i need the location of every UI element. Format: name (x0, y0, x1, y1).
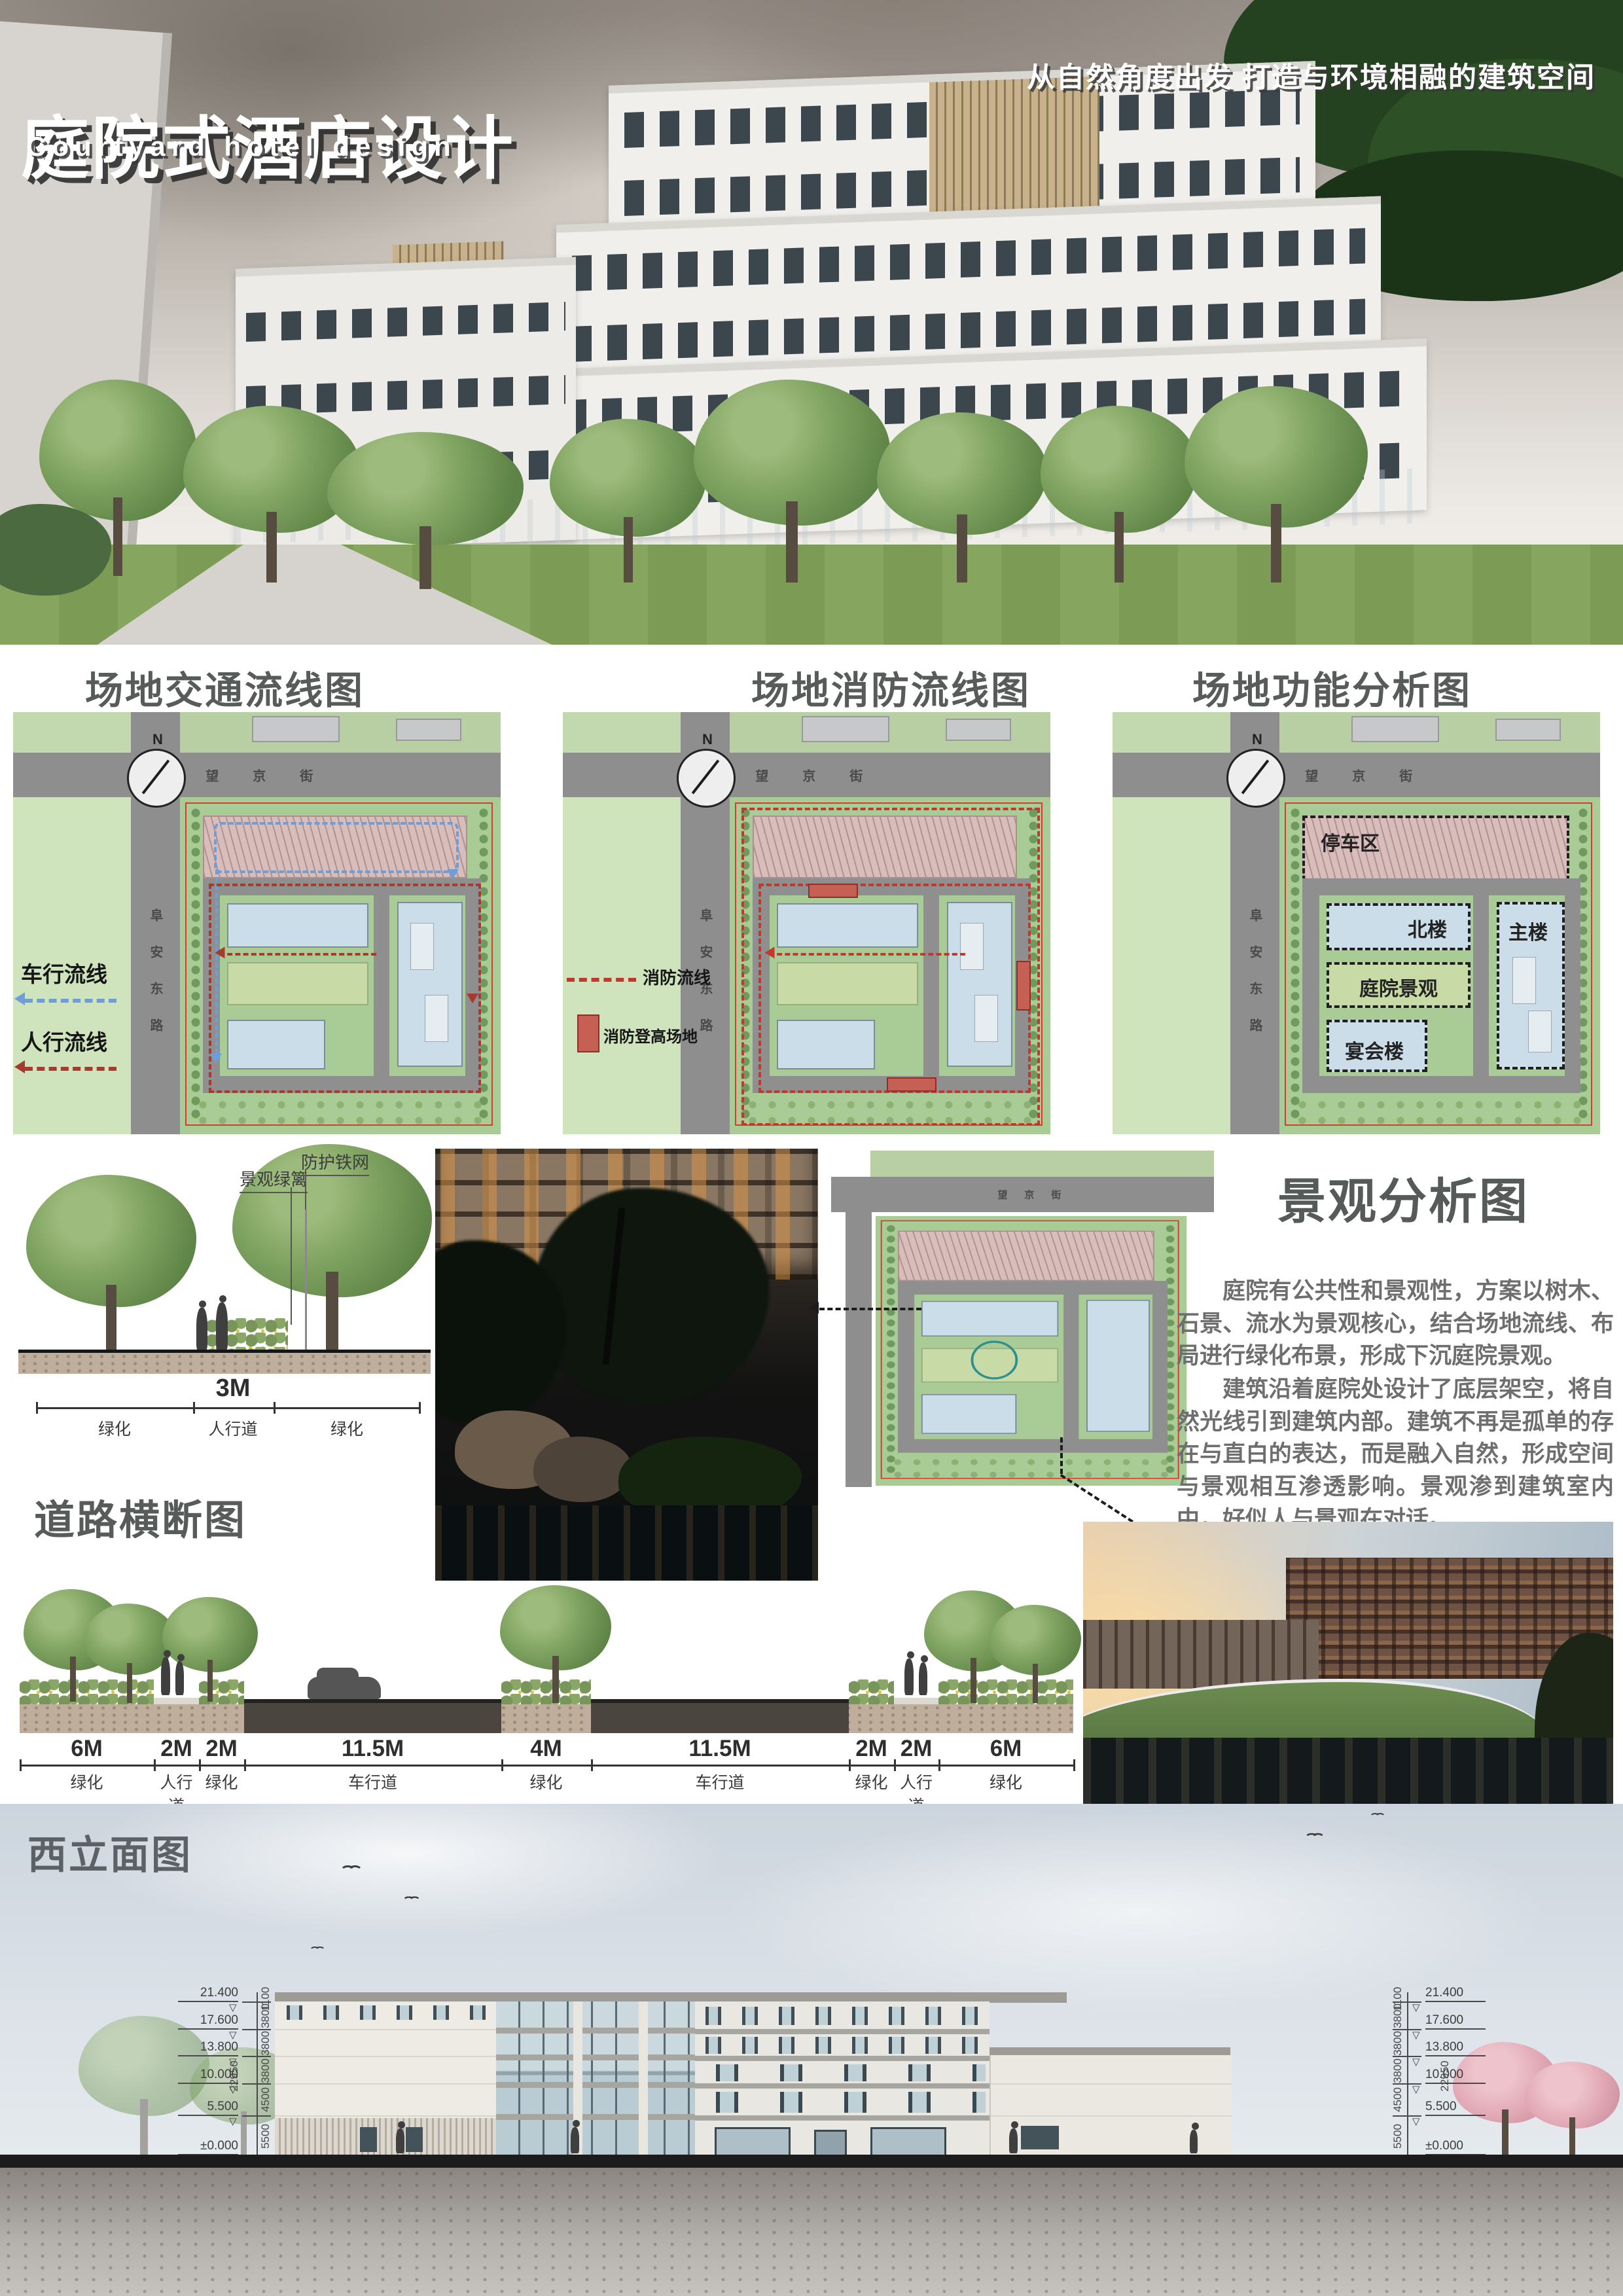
segment-dim: 11.5M (244, 1736, 501, 1762)
spandrel (695, 2083, 990, 2089)
water-reflection (435, 1505, 818, 1581)
compass-needle (1241, 760, 1270, 795)
zone-banquet-label: 宴会楼 (1345, 1035, 1404, 1064)
segment-label: 绿化 (20, 1770, 154, 1793)
parking-zone: 停车区 (1302, 816, 1569, 881)
legend-fire-pad-label: 消防登高场地 (603, 1024, 698, 1047)
tree (694, 380, 890, 583)
courtyard-photo (435, 1149, 818, 1581)
heading-function-diagram: 场地功能分析图 (1192, 660, 1472, 715)
zone-courtyard-label: 庭院景观 (1359, 973, 1438, 1001)
rock (533, 1437, 632, 1502)
low-wing-building (1083, 1620, 1319, 1689)
person-silhouette (196, 1308, 207, 1351)
floor-line (275, 2115, 496, 2117)
level-marker-icon: ▽ (1412, 2115, 1420, 2127)
floor-dim: 5500 (1391, 2121, 1404, 2152)
person-silhouette (216, 1302, 228, 1351)
road-label: 望京街 (205, 766, 347, 785)
hero-render: 庭院式酒店设计 Courtyard hotel design 从自然角度出发 打… (0, 0, 1623, 645)
segment-label: 绿化 (308, 1416, 386, 1440)
internal-road (1302, 1076, 1580, 1093)
floor-line (991, 2115, 1232, 2117)
bird-icon (1305, 1833, 1325, 1841)
poster-tagline: 从自然角度出发 打造与环境相融的建筑空间 (1027, 55, 1596, 96)
arrowhead-icon (14, 992, 25, 1005)
level-label: 21.400 (178, 1986, 238, 2002)
level-label: 5.500 (178, 2100, 238, 2116)
level-marker-icon: ▽ (1412, 2056, 1420, 2068)
floor-dim: 3800 (259, 2028, 272, 2059)
window-band (699, 2007, 986, 2025)
tree (877, 412, 1047, 583)
fire-ladder-pad (887, 1077, 936, 1092)
person-silhouette (161, 1657, 170, 1695)
slat-base (275, 2118, 496, 2155)
tree-row (883, 1223, 897, 1476)
leader-line (291, 1187, 292, 1325)
floor-line (991, 2083, 1232, 2085)
person-silhouette (571, 2127, 579, 2153)
person-silhouette (1009, 2128, 1018, 2153)
fire-route-legend-line (567, 978, 636, 982)
level-label: 5.500 (1425, 2100, 1486, 2116)
segment-dim: 11.5M (591, 1736, 849, 1762)
planting-verge (849, 1679, 894, 1704)
window (406, 2127, 423, 2152)
tree-row (188, 806, 202, 1122)
ground-line (0, 2155, 1623, 2168)
total-height-dim: 22950 (1438, 2055, 1452, 2097)
storefront-glass (870, 2127, 946, 2157)
dim-tick (274, 1402, 276, 1414)
floor-dim: 3800 (1391, 2000, 1404, 2032)
leader-line (305, 1169, 306, 1210)
pier (639, 2001, 648, 2155)
level-label: 13.800 (1425, 2040, 1486, 2056)
segment-label: 车行道 (591, 1770, 849, 1793)
dim-string-line (1407, 1992, 1408, 2157)
person-silhouette (175, 1661, 184, 1695)
diagram-function-panel: 望京街 阜安东路 N 停车区 北楼 主楼 (1113, 712, 1600, 1134)
segment-dim: 6M (20, 1736, 154, 1762)
context-green-strip (870, 1151, 1214, 1177)
bird-icon (340, 1865, 363, 1874)
west-elevation-drawing (275, 1990, 1230, 2155)
soil-section (18, 1353, 431, 1374)
internal-road (1302, 878, 1580, 895)
curtain-wall (496, 2001, 695, 2155)
internal-road (1063, 1281, 1079, 1452)
segment-dim: 2M (849, 1736, 894, 1762)
bird-icon (1370, 1813, 1385, 1819)
context-green-strip (180, 712, 501, 753)
parking-lot (898, 1230, 1154, 1281)
segment-dim: 2M (154, 1736, 199, 1762)
context-green-strip (1279, 712, 1600, 753)
zone-north-label: 北楼 (1408, 914, 1447, 942)
landscape-paragraph-1: 庭院有公共性和景观性，方案以树木、石景、流水为景观核心，结合场地流线、布局进行绿… (1177, 1275, 1614, 1372)
dim-tick (36, 1402, 38, 1414)
street-tree (500, 1585, 611, 1703)
window-row (572, 228, 1365, 291)
green-block (13, 712, 131, 753)
center-block (695, 2001, 990, 2155)
level-marker-icon: ▽ (229, 2001, 237, 2013)
pedestrian-flow-legend-line (25, 1067, 116, 1071)
courtyard-zone: 庭院景观 (1327, 962, 1471, 1008)
fire-route-line (769, 953, 965, 956)
fire-ladder-pad (808, 884, 858, 898)
segment-dim: 2M (894, 1736, 938, 1762)
floor-line (275, 2083, 496, 2085)
tree-silhouette (533, 1188, 769, 1404)
heading-traffic-diagram: 场地交通流线图 (85, 660, 365, 715)
segment-label: 绿化 (938, 1770, 1073, 1793)
north-building (921, 1301, 1059, 1336)
poster-subtitle: Courtyard hotel design (26, 131, 457, 162)
context-building (946, 719, 1011, 741)
spandrel (496, 2054, 695, 2060)
level-label: 17.600 (178, 2013, 238, 2030)
hedge-label: 景观绿篱 (240, 1166, 308, 1193)
window-band (280, 2005, 491, 2020)
road-label: 阜安东路 (146, 908, 165, 1055)
level-label: ±0.000 (178, 2139, 238, 2155)
person-silhouette (904, 1659, 914, 1695)
context-green-strip (730, 712, 1050, 753)
floor-line (275, 2056, 496, 2057)
site-plan (876, 1216, 1186, 1486)
spandrel (695, 2029, 990, 2034)
walkway-width-dim: 3M (194, 1374, 272, 1403)
vehicle-flow-loop (214, 822, 459, 873)
level-marker-icon: ▽ (229, 2029, 237, 2041)
window-band (699, 2037, 986, 2054)
floor-dim: 5500 (259, 2121, 272, 2152)
road-label: 望京街 (1305, 766, 1446, 785)
compass-needle (692, 760, 720, 795)
building-core (1512, 957, 1536, 1004)
landscape-paragraph-2: 建筑沿着庭院处设计了底层架空，将自然光线引到建筑内部。建筑不再是孤单的存在与直白… (1177, 1373, 1614, 1535)
tree (1041, 406, 1198, 583)
heading-west-elevation: 西立面图 (27, 1823, 192, 1880)
main-building (1086, 1300, 1150, 1432)
zone-parking-label: 停车区 (1321, 827, 1380, 856)
compass-n-label: N (702, 731, 713, 748)
dimension-line (36, 1407, 419, 1409)
floor-dim: 3800 (259, 2055, 272, 2087)
green-block (1113, 712, 1230, 753)
window (360, 2127, 377, 2152)
level-marker-icon: ▽ (1412, 2001, 1420, 2013)
west-road (846, 1177, 872, 1487)
internal-road (898, 1439, 1168, 1453)
mini-site-wrap (876, 1216, 1186, 1486)
compass-icon: N (127, 749, 186, 808)
north-building-zone: 北楼 (1327, 903, 1471, 950)
diagram-fire-panel: 望京街 阜安东路 N 消防流线 消防登高场地 (563, 712, 1050, 1134)
main-building-zone: 主楼 (1497, 902, 1565, 1069)
tree (550, 419, 707, 583)
car-cabin (317, 1668, 359, 1681)
dimension-line (20, 1765, 1073, 1767)
legend-pedestrian-label: 人行流线 (21, 1025, 107, 1056)
internal-road (898, 1281, 1168, 1295)
legend-vehicle-label: 车行流线 (21, 957, 107, 988)
bird-icon (402, 1896, 420, 1903)
spandrel (496, 2082, 695, 2088)
section-tree (26, 1175, 196, 1358)
roadway (244, 1699, 501, 1733)
dim-tick (193, 1402, 195, 1414)
level-marker-icon: ▽ (1412, 2029, 1420, 2041)
banquet-building-zone: 宴会楼 (1327, 1020, 1427, 1072)
spandrel (695, 2115, 990, 2121)
level-label: 13.800 (178, 2040, 238, 2056)
dim-tick (1073, 1759, 1075, 1771)
floor-dim: 3800 (1391, 2028, 1404, 2059)
legend-area: 消防流线 消防登高场地 (563, 797, 681, 1134)
pedestrian-flow-loop (209, 884, 481, 1093)
compass-icon: N (677, 749, 736, 808)
compass-n-label: N (152, 731, 163, 748)
segment-dim: 2M (199, 1736, 244, 1762)
arrowhead-icon (808, 1302, 819, 1314)
pink-tree (1525, 2062, 1620, 2155)
legend-area: 车行流线 人行流线 (13, 797, 131, 1134)
heading-landscape-analysis: 景观分析图 (1277, 1162, 1529, 1232)
window-band (699, 2064, 986, 2081)
vehicle-flow-legend-line (25, 999, 116, 1003)
level-label: ±0.000 (1425, 2139, 1486, 2155)
water-foreground (1083, 1738, 1613, 1813)
floor-dim: 3800 (1391, 2055, 1404, 2087)
internal-road (1152, 1281, 1168, 1452)
site-plan (730, 797, 1050, 1134)
street-tree (990, 1605, 1081, 1703)
segment-label: 绿化 (501, 1770, 591, 1793)
level-marker-icon: ▽ (229, 2115, 237, 2127)
green-block (563, 712, 681, 753)
arrowhead-icon (215, 947, 225, 959)
zone-main-label: 主楼 (1508, 916, 1548, 945)
storefront-glass (715, 2127, 791, 2157)
level-label: 21.400 (1425, 1986, 1486, 2002)
internal-road (1473, 878, 1489, 1093)
courtyard-focus-ring (971, 1340, 1018, 1379)
person-silhouette (1190, 2130, 1198, 2153)
dim-tick (242, 2115, 271, 2117)
spandrel (695, 2056, 990, 2061)
arrowhead-icon (14, 1060, 25, 1073)
site-plan: 停车区 北楼 主楼 宴会楼 庭院景观 (1279, 797, 1600, 1134)
window-row (246, 302, 565, 342)
north-road: 望京街 (13, 753, 501, 797)
tree (327, 432, 524, 589)
north-road: 望京街 (831, 1177, 1214, 1212)
heading-fire-diagram: 场地消防流线图 (751, 660, 1031, 715)
total-height-dim: 22950 (228, 2055, 241, 2097)
pedestrian-flow-line (219, 953, 376, 956)
spandrel (496, 2114, 695, 2120)
internal-road (1302, 878, 1319, 1093)
road-label: 望京街 (997, 1188, 1078, 1202)
orchard-grove (193, 1097, 486, 1124)
banquet-building (921, 1394, 1017, 1434)
roadway (591, 1699, 849, 1733)
dim-tick (419, 1402, 421, 1414)
level-marker-icon: ▽ (1412, 2083, 1420, 2095)
landscape-plan: 望京街 (831, 1151, 1214, 1487)
wood-slat-screen (929, 77, 1099, 223)
ground-texture (0, 2168, 1623, 2296)
segment-dim: 4M (501, 1736, 591, 1762)
bird-icon (310, 1946, 325, 1952)
left-tower (275, 2001, 497, 2155)
compass-needle (142, 760, 170, 795)
floor-dim: 4500 (259, 2084, 272, 2115)
road-label: 阜安东路 (1245, 908, 1264, 1055)
internal-road (898, 1281, 914, 1452)
site-plan (180, 797, 501, 1134)
tree-row (1287, 806, 1302, 1122)
green-roof-photo (1083, 1522, 1613, 1813)
legend-fire-route-label: 消防流线 (643, 965, 711, 989)
floor-line (275, 2029, 496, 2030)
context-building (802, 716, 889, 742)
segment-dim: 6M (938, 1736, 1073, 1762)
segment-label: 人行道 (194, 1416, 272, 1440)
segment-label: 绿化 (849, 1770, 894, 1793)
context-building (396, 719, 461, 741)
fence-label: 防护铁网 (301, 1149, 369, 1176)
arrowhead-icon (467, 994, 478, 1003)
fire-pad-legend-swatch (577, 1014, 599, 1052)
annotation-arrow-line (1060, 1437, 1063, 1474)
orchard-grove (1293, 1097, 1586, 1124)
fire-ladder-pad (1016, 961, 1031, 1011)
level-label: 17.600 (1425, 2013, 1486, 2030)
road-label: 望京街 (755, 766, 897, 785)
floor-dim: 4500 (1391, 2084, 1404, 2115)
person-silhouette (919, 1662, 927, 1695)
annotation-arrow-line (819, 1308, 921, 1310)
internal-road (1565, 878, 1580, 1093)
arrowhead-icon (765, 947, 775, 959)
orchard-grove (888, 1456, 1173, 1478)
soil-band (20, 1704, 1073, 1733)
heading-road-section: 道路横断图 (34, 1487, 247, 1546)
tree (1185, 386, 1368, 583)
context-building (252, 716, 340, 742)
floor-dim: 3800 (259, 2000, 272, 2032)
segment-label: 绿化 (75, 1416, 154, 1440)
level-label: 10.000 (1425, 2068, 1486, 2084)
window-band (699, 2092, 986, 2113)
spandrel (496, 2028, 695, 2034)
fire-route-inner-loop (758, 884, 1031, 1093)
dim-string-line (257, 1992, 258, 2157)
window (1021, 2126, 1059, 2149)
person-silhouette (396, 2128, 404, 2153)
context-building (1495, 719, 1561, 741)
segment-label: 车行道 (244, 1770, 501, 1793)
poster-page: 庭院式酒店设计 Courtyard hotel design 从自然角度出发 打… (0, 0, 1623, 2296)
segment-label: 绿化 (199, 1770, 244, 1793)
green-verge (1113, 797, 1230, 1134)
context-building (1351, 716, 1439, 742)
building-core (1528, 1011, 1552, 1052)
diagram-traffic-panel: 望京街 阜安东路 N 车行流线 人行流线 (13, 712, 501, 1134)
compass-n-label: N (1252, 731, 1262, 748)
compass-icon: N (1226, 749, 1285, 808)
protective-mesh-fence (305, 1210, 307, 1351)
arrowhead-icon (447, 869, 459, 879)
north-road: 望京街 (563, 753, 1050, 797)
north-road: 望京街 (1113, 753, 1600, 797)
